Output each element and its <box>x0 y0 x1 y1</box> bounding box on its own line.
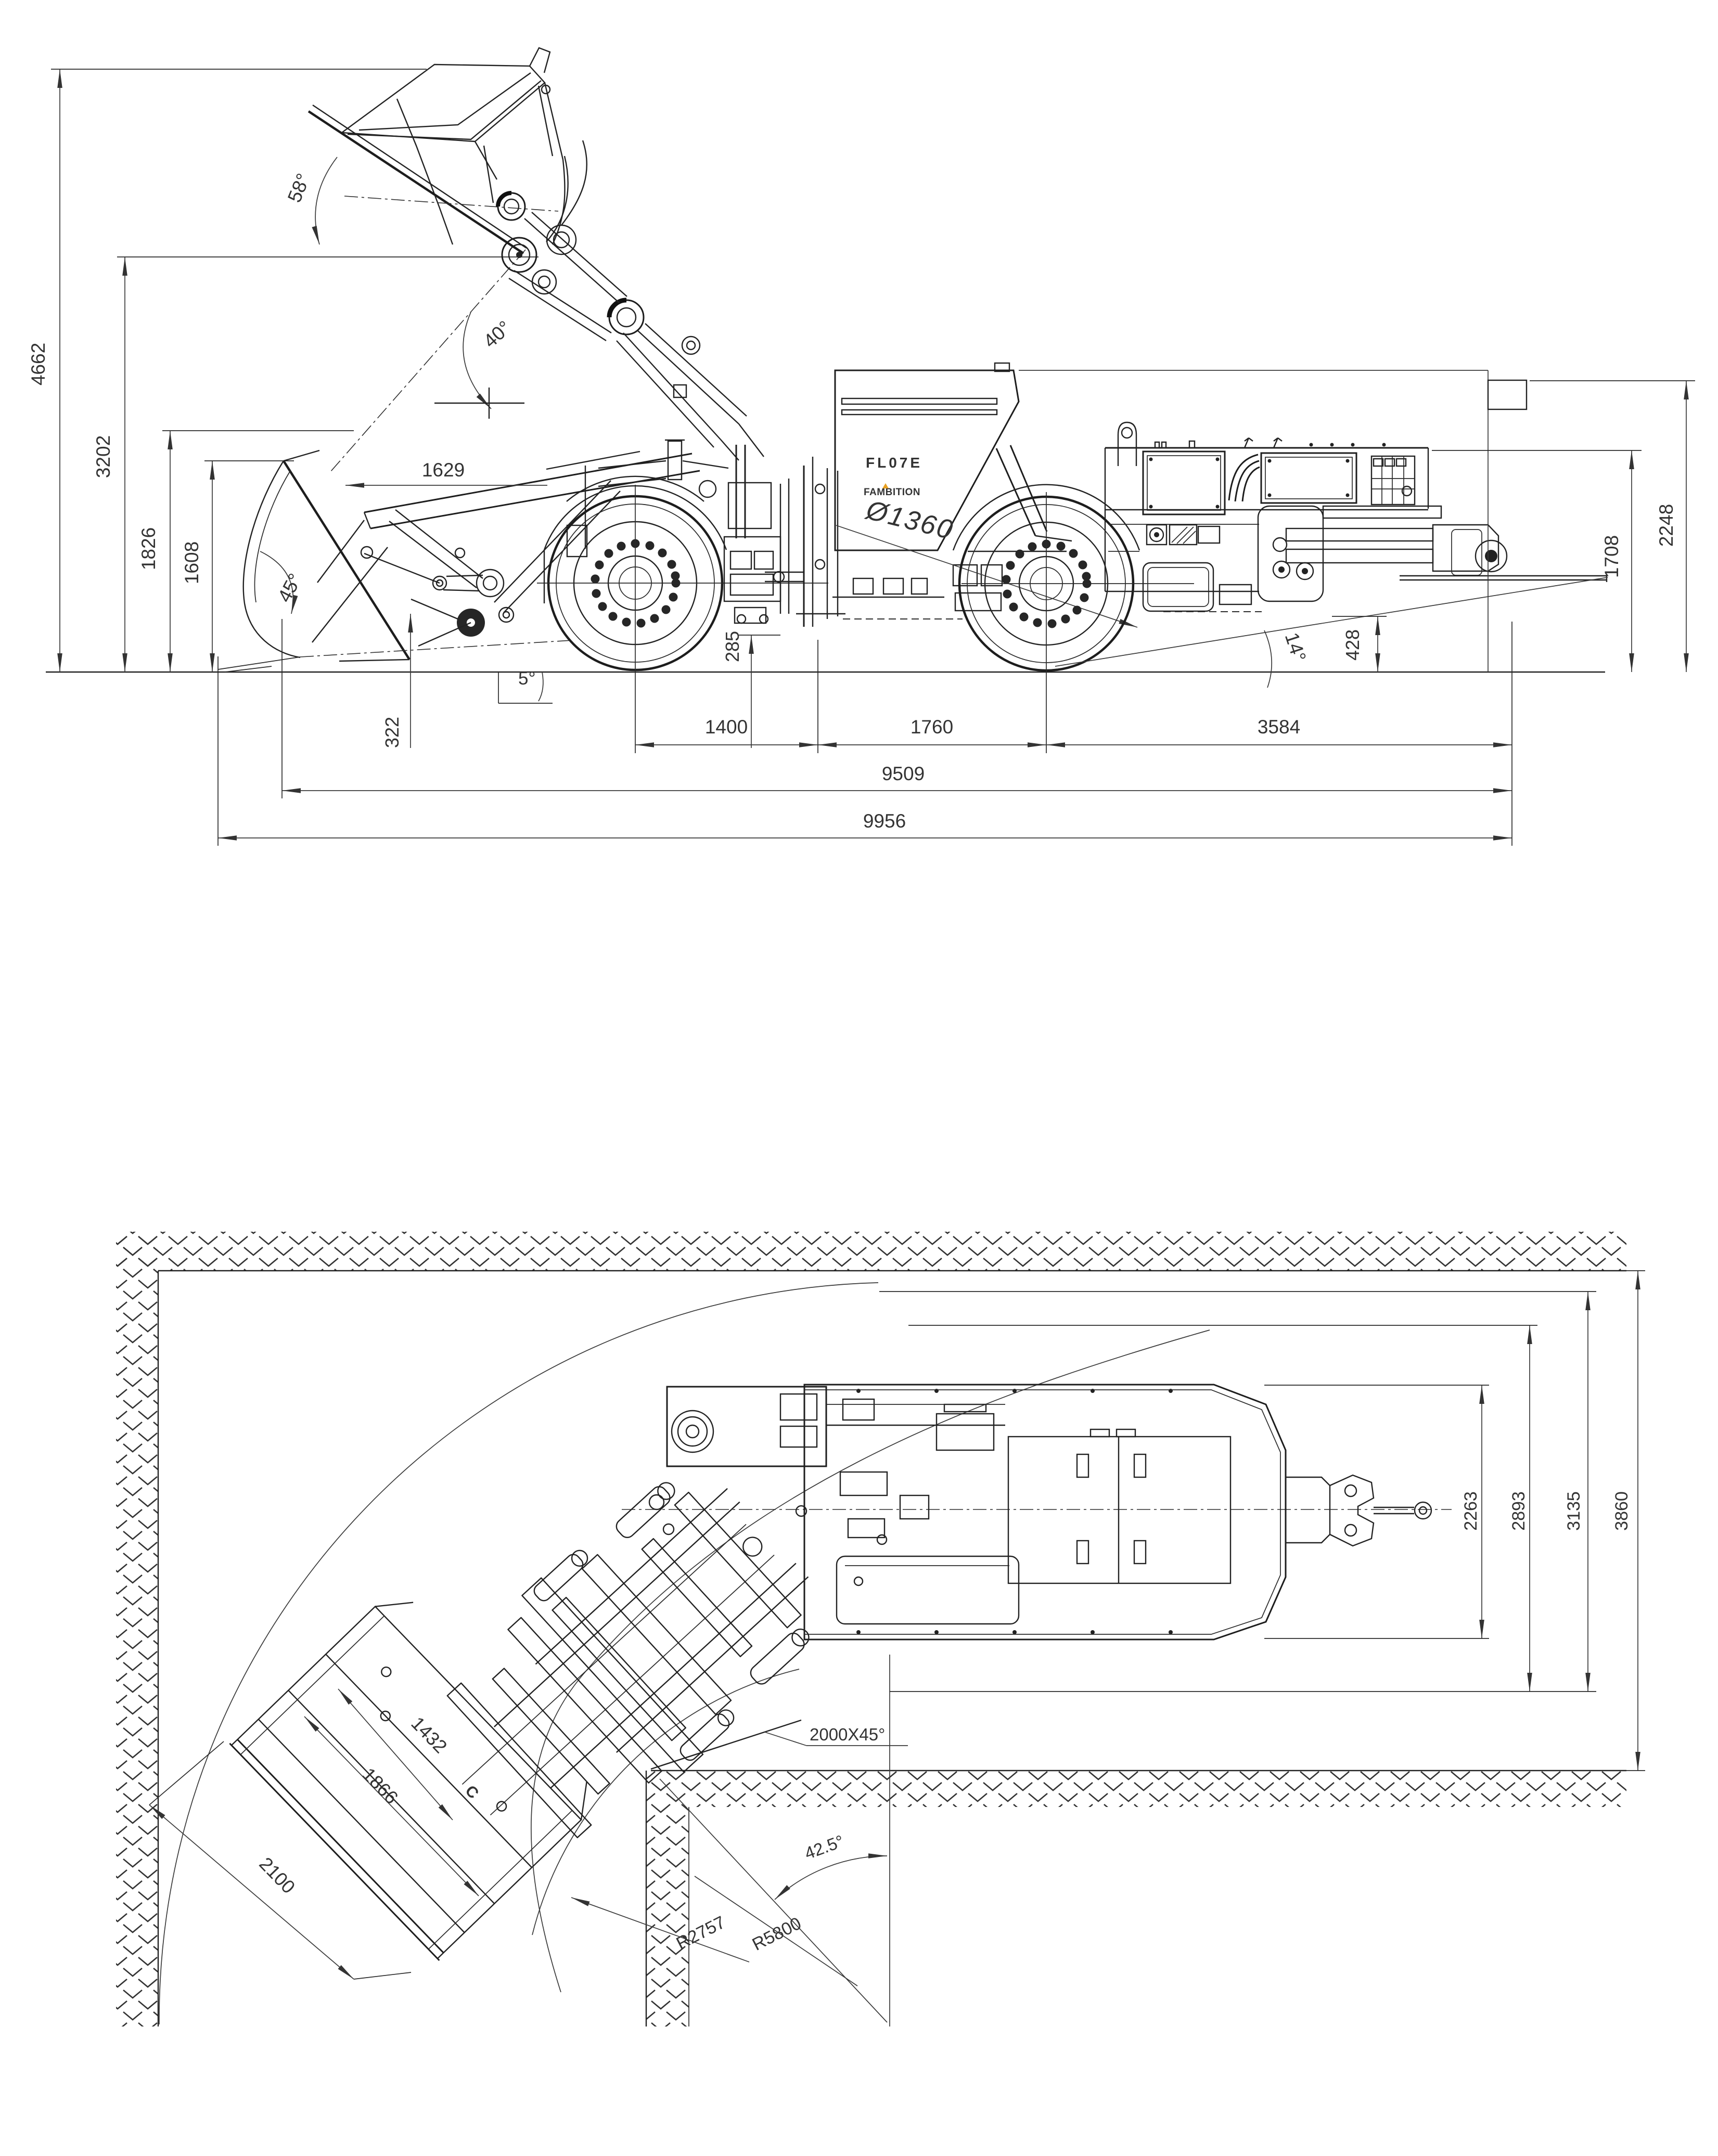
svg-text:C: C <box>461 1782 482 1802</box>
svg-text:1432: 1432 <box>407 1712 451 1757</box>
svg-text:428: 428 <box>1342 629 1363 661</box>
svg-text:42.5°: 42.5° <box>802 1831 846 1863</box>
svg-text:3860: 3860 <box>1612 1491 1632 1531</box>
svg-text:3135: 3135 <box>1564 1491 1584 1531</box>
svg-text:2263: 2263 <box>1461 1491 1481 1531</box>
svg-text:5°: 5° <box>518 668 535 689</box>
svg-text:58°: 58° <box>284 171 314 205</box>
svg-text:Ø1360: Ø1360 <box>862 495 957 546</box>
svg-text:1760: 1760 <box>911 716 953 738</box>
svg-text:FL07E: FL07E <box>866 455 922 471</box>
svg-text:2100: 2100 <box>255 1853 299 1897</box>
svg-text:2893: 2893 <box>1509 1491 1529 1531</box>
svg-text:R5800: R5800 <box>749 1914 805 1955</box>
svg-text:322: 322 <box>381 717 403 748</box>
svg-text:2000X45°: 2000X45° <box>810 1725 885 1744</box>
svg-text:9509: 9509 <box>882 763 925 784</box>
svg-text:1400: 1400 <box>705 716 748 738</box>
svg-text:14°: 14° <box>1281 630 1310 664</box>
svg-text:1608: 1608 <box>181 541 202 584</box>
svg-text:45°: 45° <box>274 570 306 606</box>
svg-text:4662: 4662 <box>28 343 49 385</box>
svg-text:3202: 3202 <box>93 435 114 478</box>
svg-text:1629: 1629 <box>422 459 465 481</box>
svg-text:9956: 9956 <box>863 810 906 832</box>
svg-text:285: 285 <box>722 631 743 662</box>
svg-text:3584: 3584 <box>1258 716 1300 738</box>
svg-text:1826: 1826 <box>138 527 159 570</box>
svg-text:2248: 2248 <box>1656 504 1677 547</box>
svg-text:1708: 1708 <box>1601 535 1622 578</box>
svg-text:40°: 40° <box>479 317 515 352</box>
